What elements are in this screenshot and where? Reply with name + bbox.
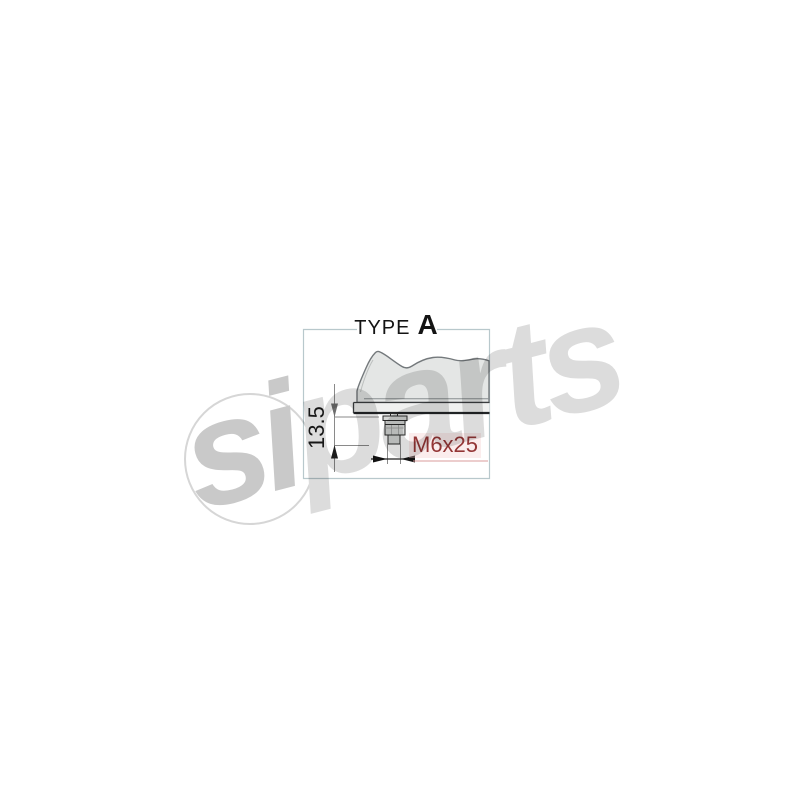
stud-collar	[385, 421, 405, 425]
stud-nut	[385, 425, 405, 436]
stud-washer	[383, 416, 407, 421]
bolt-spec-label: M6x25	[409, 433, 481, 458]
mounting-plate	[354, 403, 490, 414]
housing-shape	[357, 352, 489, 403]
technical-drawing	[0, 0, 800, 800]
dimension-arrow-down	[331, 404, 338, 418]
product-image-canvas: TYPE A 13.5 M6x25 siparts	[0, 0, 800, 800]
stud-assembly	[383, 414, 407, 445]
stud-shaft	[388, 435, 400, 444]
type-title-prefix: TYPE	[354, 317, 410, 340]
dimension-arrow-up	[331, 445, 338, 459]
dimension-arrow-right	[373, 456, 387, 463]
type-title-variant: A	[418, 309, 438, 341]
height-dimension-label: 13.5	[304, 406, 330, 449]
type-title: TYPE A	[303, 309, 489, 335]
